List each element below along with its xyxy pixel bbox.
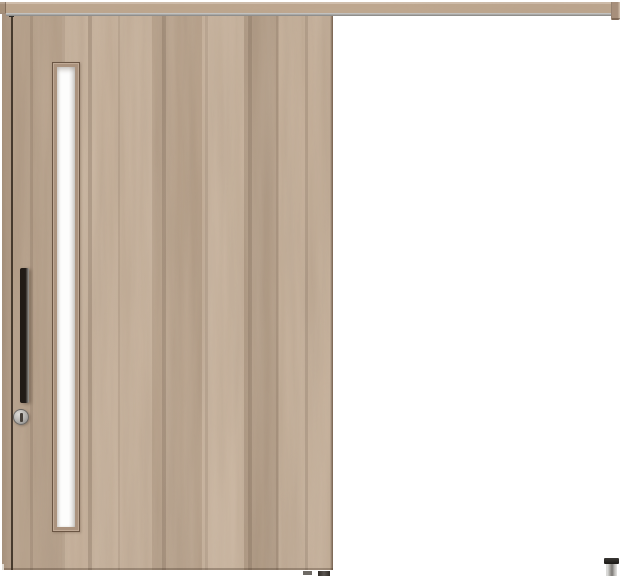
door-bottom-edge — [2, 568, 333, 570]
door-panel — [2, 13, 333, 570]
lock-slot — [20, 413, 23, 422]
glass-slit-window — [52, 62, 80, 532]
rail-track — [6, 13, 612, 16]
rail-wood-grain-texture — [0, 2, 619, 13]
floor-guide — [318, 571, 330, 576]
glass-pane — [57, 67, 75, 527]
door-right-edge — [330, 13, 333, 570]
door-edge-groove — [11, 13, 13, 570]
door-handle-bar — [20, 268, 29, 403]
door-left-edge — [2, 13, 11, 570]
product-image — [0, 0, 620, 576]
rail-end-cap — [611, 2, 620, 20]
door-bottom-corner-highlight — [2, 564, 4, 570]
floor-stopper-body — [606, 564, 617, 576]
thumb-turn-lock — [13, 409, 29, 425]
floor-guide — [303, 571, 312, 575]
rail-left-end — [0, 2, 6, 13]
